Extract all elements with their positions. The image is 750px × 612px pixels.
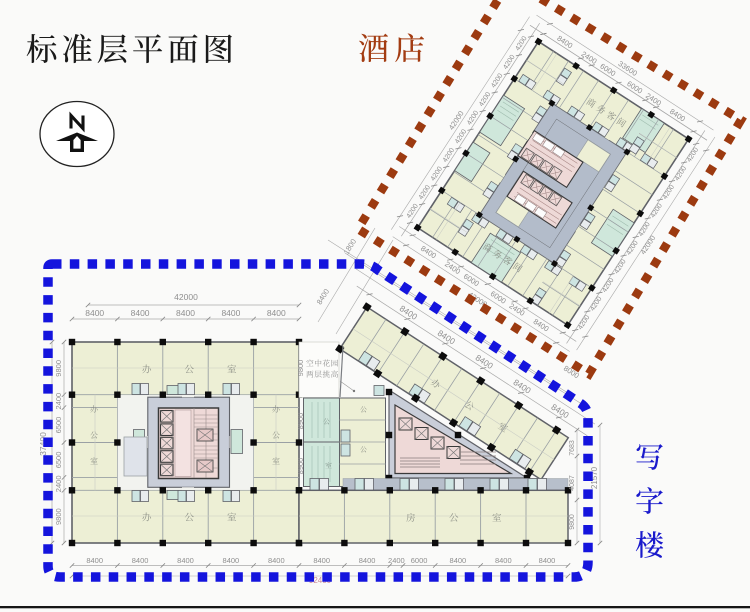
svg-text:6500: 6500 — [54, 452, 63, 469]
svg-text:9800: 9800 — [54, 360, 63, 377]
svg-text:2400: 2400 — [54, 393, 63, 410]
svg-text:8400: 8400 — [359, 556, 376, 565]
svg-text:8400: 8400 — [313, 556, 330, 565]
svg-text:8400: 8400 — [223, 556, 240, 565]
svg-text:42000: 42000 — [174, 292, 198, 302]
svg-text:8900: 8900 — [296, 413, 305, 430]
svg-text:8400: 8400 — [85, 308, 104, 318]
svg-text:2400: 2400 — [54, 476, 63, 493]
svg-text:8400: 8400 — [177, 556, 194, 565]
svg-text:8400: 8400 — [495, 556, 512, 565]
svg-text:8400: 8400 — [86, 556, 103, 565]
svg-text:2400: 2400 — [388, 556, 405, 565]
svg-text:8400: 8400 — [132, 556, 149, 565]
svg-text:8400: 8400 — [267, 308, 286, 318]
svg-text:8400: 8400 — [221, 308, 240, 318]
svg-text:9800: 9800 — [296, 360, 305, 377]
svg-text:8900: 8900 — [296, 458, 305, 475]
svg-text:8400: 8400 — [268, 556, 285, 565]
svg-text:8400: 8400 — [176, 308, 195, 318]
svg-text:8400: 8400 — [131, 308, 150, 318]
svg-text:9800: 9800 — [569, 514, 576, 530]
svg-text:6500: 6500 — [54, 417, 63, 434]
svg-text:6000: 6000 — [411, 556, 428, 565]
svg-text:9800: 9800 — [54, 508, 63, 525]
svg-text:8400: 8400 — [539, 556, 556, 565]
svg-text:8400: 8400 — [450, 556, 467, 565]
svg-text:7683: 7683 — [569, 440, 576, 456]
svg-text:4087: 4087 — [569, 475, 576, 491]
